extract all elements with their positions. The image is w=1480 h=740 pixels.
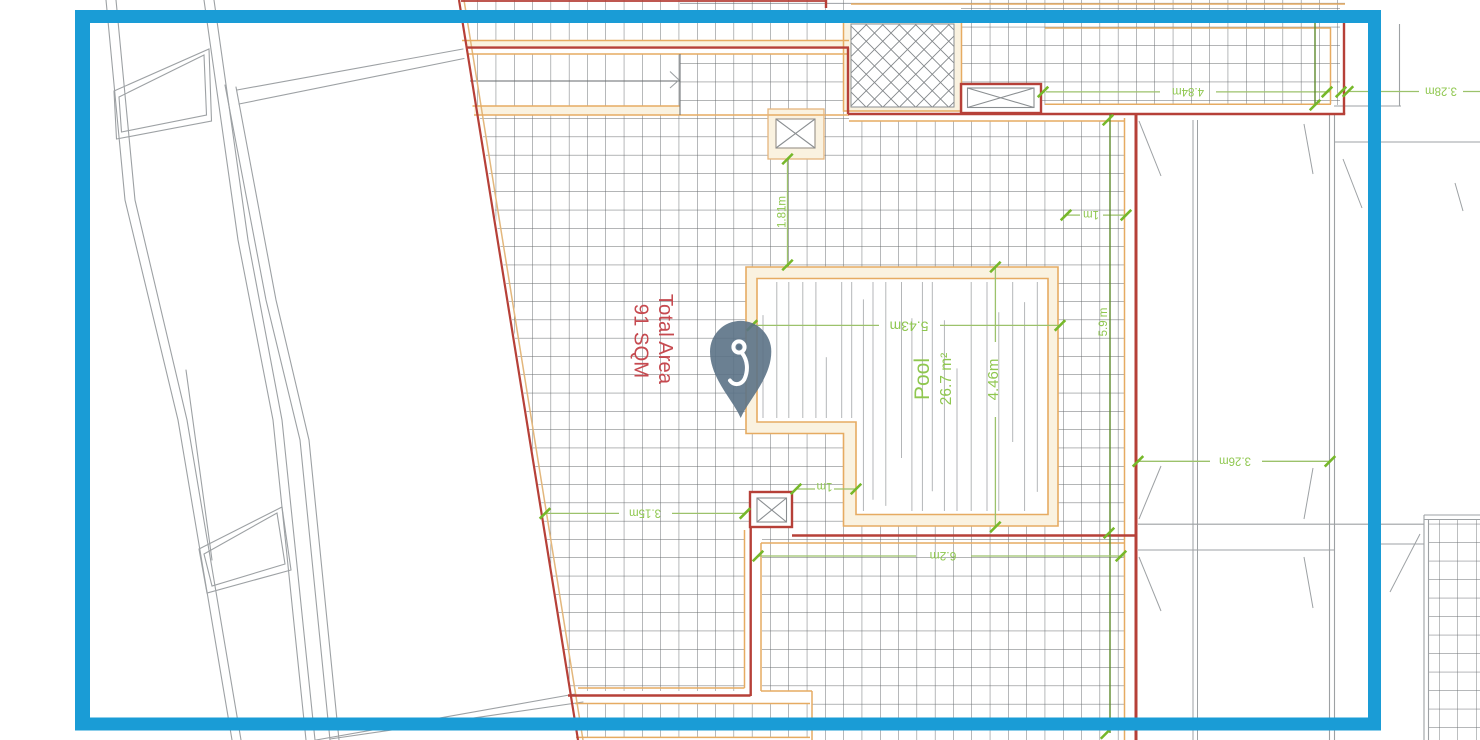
- svg-text:1m: 1m: [817, 480, 833, 492]
- svg-text:1m: 1m: [1083, 208, 1099, 220]
- svg-text:Total Area: Total Area: [654, 294, 676, 385]
- svg-text:Pool: Pool: [911, 358, 934, 400]
- svg-text:5.9 m: 5.9 m: [1098, 308, 1110, 337]
- svg-text:26.7 m²: 26.7 m²: [938, 353, 955, 406]
- svg-text:4.84m: 4.84m: [1172, 85, 1204, 97]
- svg-text:3.28m: 3.28m: [1425, 85, 1457, 97]
- svg-text:3.26m: 3.26m: [1219, 454, 1251, 466]
- svg-text:6.2m: 6.2m: [930, 549, 957, 563]
- svg-text:1.81m: 1.81m: [777, 196, 789, 228]
- svg-text:5.43m: 5.43m: [890, 318, 929, 334]
- svg-text:3.15m: 3.15m: [629, 506, 661, 518]
- svg-text:4.46m: 4.46m: [985, 359, 1002, 401]
- svg-text:91 SQM: 91 SQM: [630, 304, 652, 378]
